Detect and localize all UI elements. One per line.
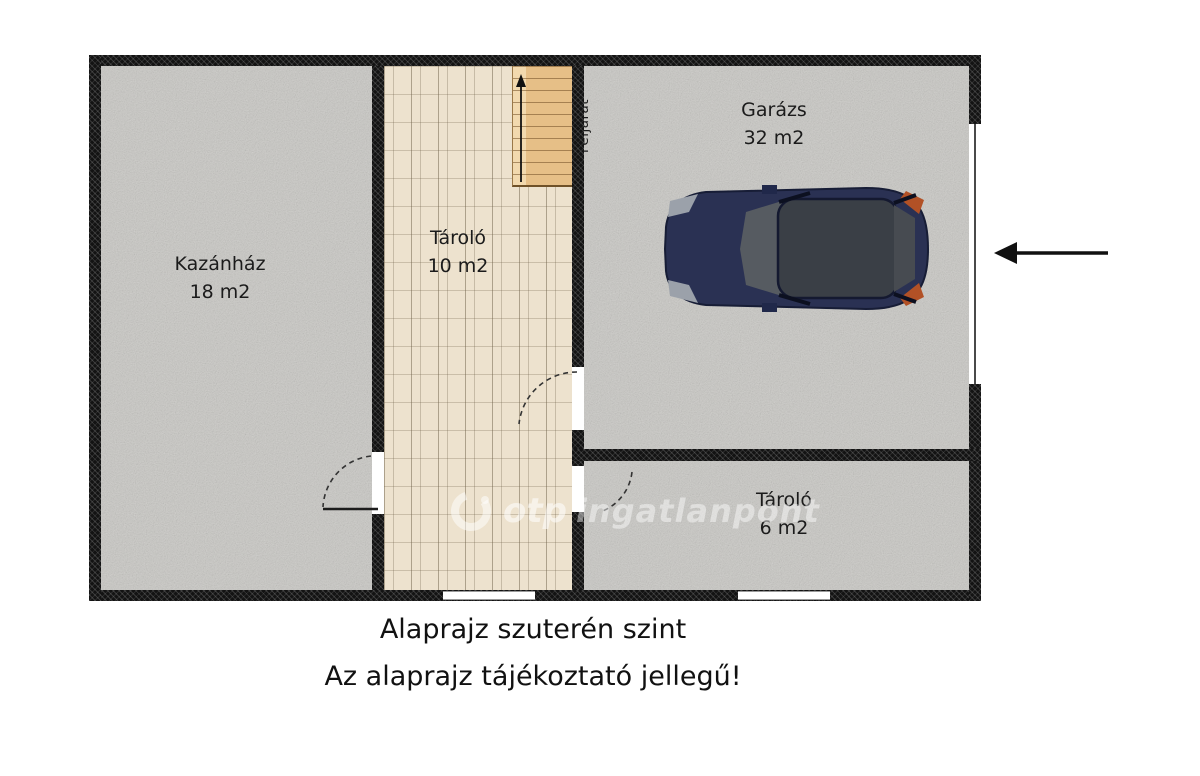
room-name: Tároló (694, 486, 874, 514)
room-kazanhaz (101, 66, 372, 590)
room-area: 6 m2 (694, 514, 874, 542)
doorway-garazs (572, 367, 584, 430)
label-tarolo-6: Tároló 6 m2 (694, 486, 874, 542)
entrance-arrow-icon (994, 242, 1108, 264)
room-name: Kazánház (130, 250, 310, 278)
doorway-tarolo6 (572, 466, 584, 512)
room-area: 10 m2 (368, 252, 548, 280)
car-rear-window (894, 205, 915, 292)
wall-bottom (89, 590, 981, 601)
window-bottom-right (738, 591, 830, 600)
caption-title: Alaprajz szuterén szint (0, 614, 1066, 646)
room-name: Tároló (368, 224, 548, 252)
concrete-texture (101, 66, 372, 590)
captions: Alaprajz szuterén szint Az alaprajz tájé… (0, 614, 1066, 693)
label-garazs: Garázs 32 m2 (684, 96, 864, 152)
car-mirror-bottom (762, 303, 777, 312)
floorplan-page: Feljárat Kazánház 18 m2 Tároló 10 m2 Gar… (0, 0, 1200, 776)
caption-disclaimer: Az alaprajz tájékoztató jellegű! (0, 661, 1066, 693)
wall-left (89, 55, 101, 601)
car-windshield (740, 201, 782, 296)
garage-door-opening (969, 124, 981, 384)
doorway-kazanhaz (372, 452, 384, 514)
room-name: Garázs (684, 96, 864, 124)
staircase: Feljárat (512, 66, 572, 187)
car-top-view (658, 185, 930, 312)
car-mirror-top (762, 185, 777, 194)
label-kazanhaz: Kazánház 18 m2 (130, 250, 310, 306)
room-area: 32 m2 (684, 124, 864, 152)
car-roof (778, 199, 898, 298)
room-area: 18 m2 (130, 278, 310, 306)
stairs-up-arrow-icon (513, 66, 533, 187)
label-tarolo-10: Tároló 10 m2 (368, 224, 548, 280)
wall-top (89, 55, 981, 66)
window-bottom-left (443, 591, 535, 600)
wall-garazs-tarolo6 (572, 449, 981, 461)
